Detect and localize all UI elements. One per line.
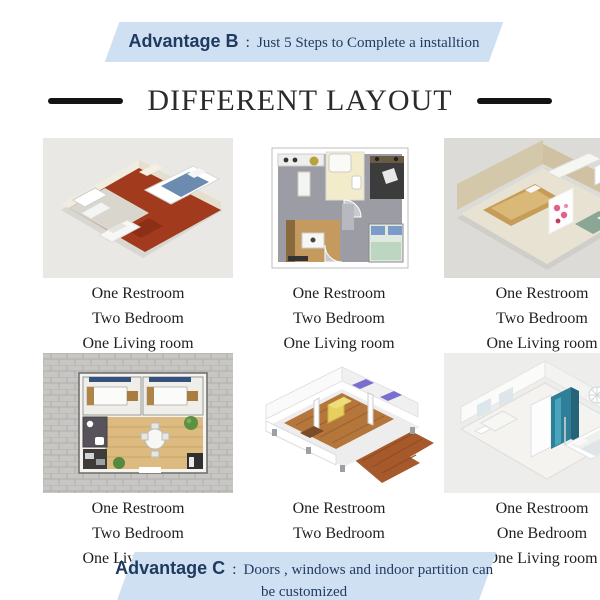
advantage-c-description-line2: be customized (261, 584, 347, 600)
advantage-b-banner: Advantage B : Just 5 Steps to Complete a… (105, 22, 504, 62)
floorplan-3d-white-teal-illustration (444, 353, 600, 493)
advantage-b-banner-text: Advantage B : Just 5 Steps to Complete a… (112, 22, 496, 62)
layout-card-3: One Restroom Two Bedroom One Living room (444, 138, 600, 356)
advantage-c-separator: : (229, 561, 239, 578)
advantage-b-label: Advantage B (129, 31, 239, 51)
caption-line: One Restroom (43, 496, 233, 521)
page-title: DIFFERENT LAYOUT (147, 84, 452, 118)
floorplan-3d-beige-image (444, 138, 600, 278)
title-dash-right (477, 98, 552, 104)
advantage-b-separator: : (243, 34, 253, 51)
layout-card-5: One Restroom Two Bedroom One Living room (240, 353, 438, 571)
layout-card-1-caption: One Restroom Two Bedroom One Living room (43, 281, 233, 356)
caption-line: Two Bedroom (240, 306, 438, 331)
advantage-c-banner-text: Advantage C : Doors , windows and indoor… (123, 552, 485, 600)
title-dash-left (48, 98, 123, 104)
floorplan-2d-pavers-illustration (43, 353, 233, 493)
layout-card-2: One Restroom Two Bedroom One Living room (240, 138, 438, 356)
advantage-c-banner: Advantage C : Doors , windows and indoor… (113, 552, 496, 600)
layout-card-1: One Restroom Two Bedroom One Living room (43, 138, 233, 356)
product-advert-page: Advantage B : Just 5 Steps to Complete a… (0, 0, 600, 600)
floorplan-3d-white-deck-image (240, 353, 438, 493)
caption-line: Two Bedroom (43, 521, 233, 546)
caption-line: One Restroom (240, 281, 438, 306)
advantage-b-description: Just 5 Steps to Complete a installtion (257, 35, 480, 51)
advantage-c-label: Advantage C (115, 558, 225, 578)
layout-card-6: One Restroom One Bedroom One Living room (444, 353, 600, 571)
caption-line: Two Bedroom (240, 521, 438, 546)
floorplan-2d-gray-illustration (240, 138, 438, 278)
caption-line: One Bedroom (444, 521, 600, 546)
layout-card-3-caption: One Restroom Two Bedroom One Living room (444, 281, 600, 356)
caption-line: Two Bedroom (43, 306, 233, 331)
floorplan-2d-pavers-image (43, 353, 233, 493)
section-title-row: DIFFERENT LAYOUT (0, 82, 600, 120)
advantage-c-description: Doors , windows and indoor partition can (244, 562, 494, 578)
floorplan-3d-beige-illustration (444, 138, 600, 278)
caption-line: One Restroom (43, 281, 233, 306)
layout-card-2-caption: One Restroom Two Bedroom One Living room (240, 281, 438, 356)
caption-line: One Restroom (444, 496, 600, 521)
floorplan-3d-red-floor-illustration (43, 138, 233, 278)
floorplan-3d-white-deck-illustration (240, 353, 438, 493)
caption-line: Two Bedroom (444, 306, 600, 331)
floorplan-2d-gray-image (240, 138, 438, 278)
caption-line: One Restroom (444, 281, 600, 306)
layout-card-4: One Restroom Two Bedroom One Living room (43, 353, 233, 571)
floorplan-3d-white-teal-image (444, 353, 600, 493)
caption-line: One Restroom (240, 496, 438, 521)
floorplan-3d-red-floor-image (43, 138, 233, 278)
